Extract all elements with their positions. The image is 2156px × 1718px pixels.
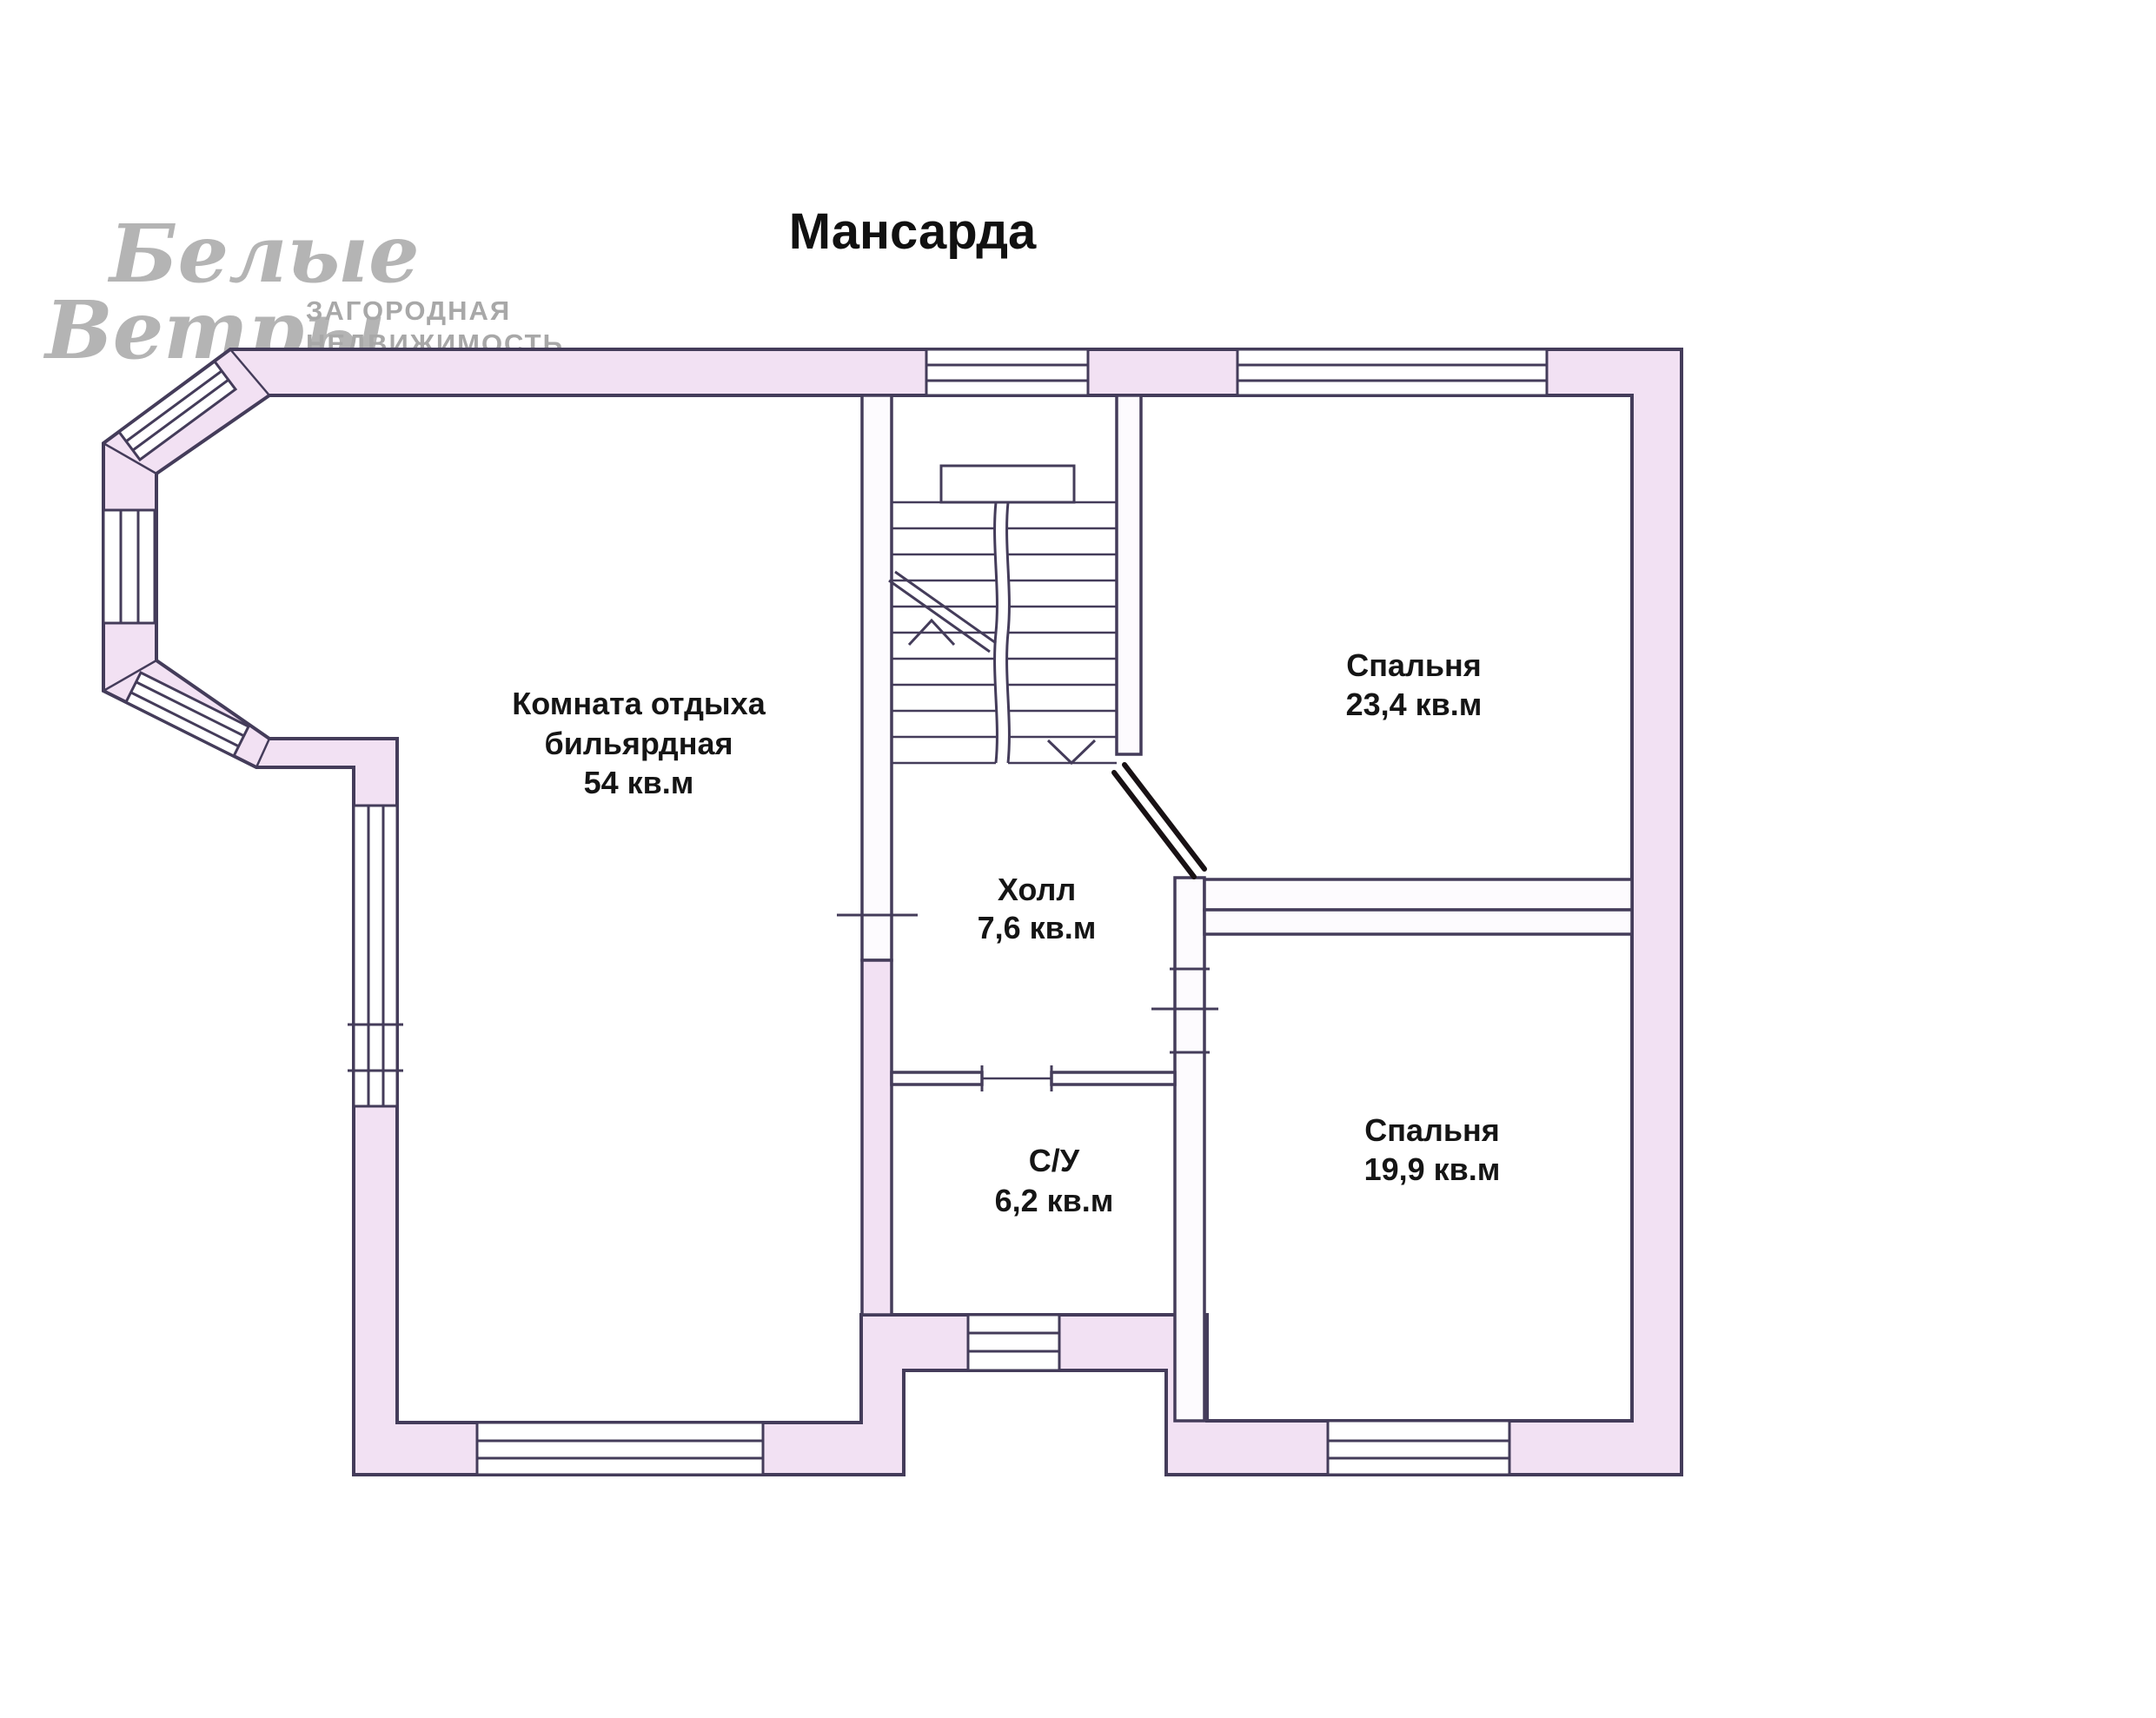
- window-bottom-bedroom-small: [1328, 1421, 1509, 1475]
- window-left-wall: [348, 806, 403, 1106]
- wall-bedrooms-divider-upper: [1204, 879, 1632, 910]
- window-bottom-billiard: [477, 1423, 763, 1475]
- floorplan-canvas: Белые Ветры ЗАГОРОДНАЯ НЕДВИЖИМОСТЬ Манс…: [0, 0, 2156, 1718]
- stair-landing: [941, 466, 1074, 502]
- bedroom-small-area: 19,9 кв.м: [1364, 1151, 1501, 1187]
- bathroom-area: 6,2 кв.м: [995, 1183, 1114, 1218]
- window-bay-middle: [103, 510, 155, 623]
- billiard-area: 54 кв.м: [584, 765, 694, 800]
- bedroom-large-name: Спальня: [1346, 647, 1482, 683]
- wall-billiard-stairs: [862, 395, 892, 960]
- billiard-name-line2: бильярдная: [544, 726, 733, 761]
- wall-hall-bathroom-right: [1051, 1072, 1175, 1085]
- page-title: Мансарда: [789, 203, 1037, 260]
- bedroom-large-area: 23,4 кв.м: [1346, 687, 1483, 722]
- hall-area: 7,6 кв.м: [978, 910, 1097, 945]
- hall-name: Холл: [998, 872, 1076, 907]
- bathroom-name: С/У: [1029, 1143, 1080, 1178]
- wall-billiard-bathroom: [862, 960, 892, 1315]
- window-bottom-bathroom: [968, 1315, 1059, 1370]
- wall-hall-bedroom-small: [1175, 878, 1204, 1421]
- bedroom-small-name: Спальня: [1364, 1112, 1500, 1148]
- wall-stairs-bedroom-large: [1117, 395, 1141, 754]
- window-top-1: [926, 349, 1088, 395]
- floorplan: Комната отдыха бильярдная 54 кв.м Спальн…: [103, 349, 1682, 1475]
- wall-hall-bathroom-left: [892, 1072, 982, 1085]
- window-top-2: [1237, 349, 1547, 395]
- logo-tagline-line1: ЗАГОРОДНАЯ: [306, 295, 511, 326]
- billiard-name-line1: Комната отдыха: [512, 686, 766, 721]
- wall-bedrooms-divider-lower: [1204, 910, 1632, 934]
